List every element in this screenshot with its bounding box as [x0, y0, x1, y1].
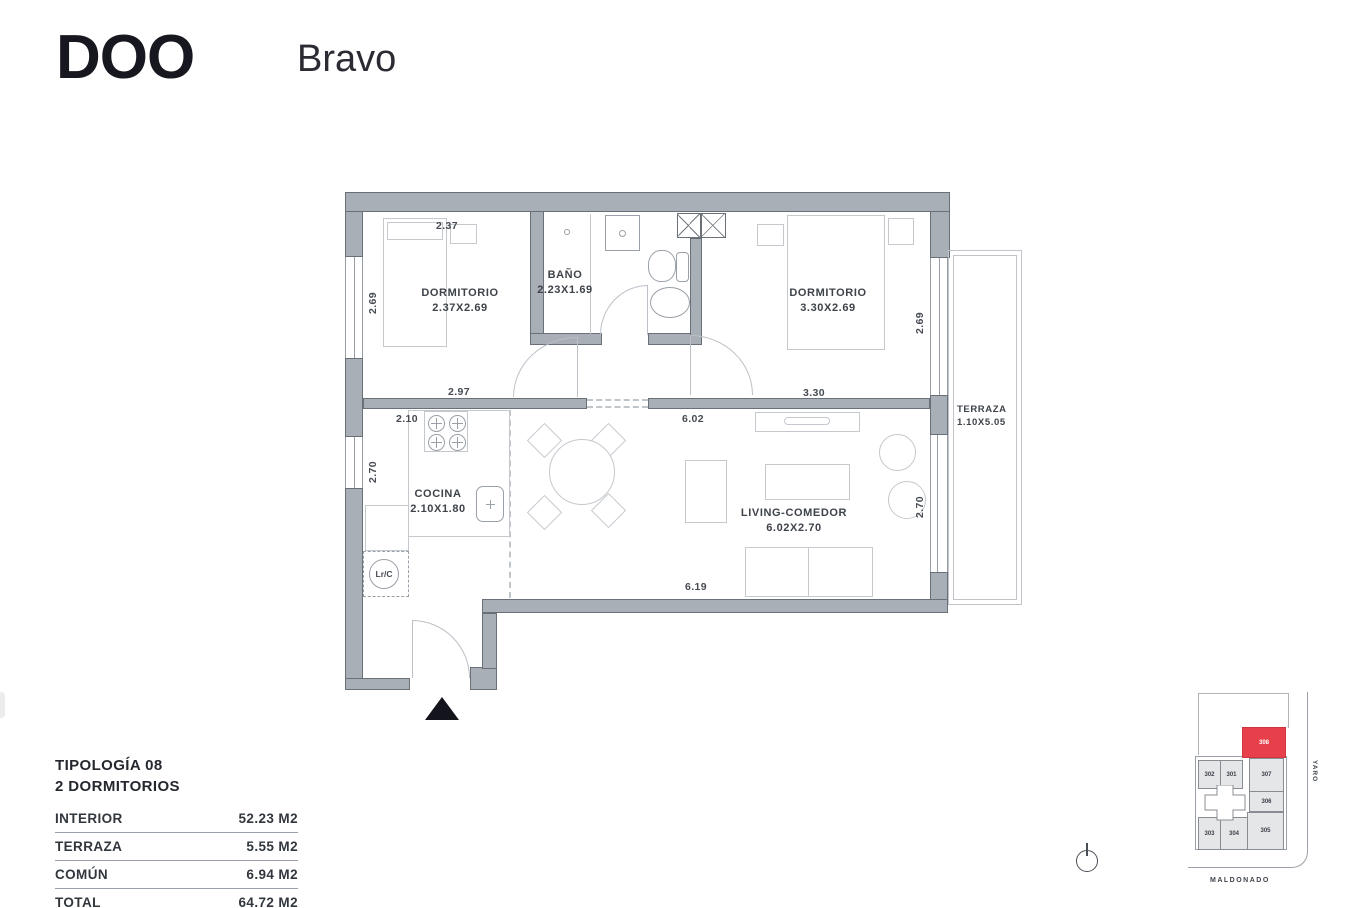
label-terraza: TERRAZA1.10X5.05 [957, 404, 1019, 430]
door-leaf-dorm2 [690, 335, 691, 395]
nightstand-dorm2-right [888, 218, 914, 245]
door-arc-bath [600, 285, 648, 335]
sitemap-unit-306: 306 [1249, 791, 1284, 812]
wall-left-c [345, 488, 363, 690]
project-name: Bravo [297, 40, 396, 78]
side-table [685, 460, 727, 523]
dim-dorm1-top: 2.37 [427, 219, 467, 233]
duct-shaft-2 [701, 213, 726, 238]
dim-cocina-top: 2.10 [387, 412, 427, 426]
street-label-yaro: YARO [1311, 760, 1318, 782]
label-bano: BAÑO2.23X1.69 [533, 268, 597, 298]
north-arrow-needle [1086, 843, 1088, 856]
wall-right-mid [930, 395, 948, 435]
window-cocina [345, 437, 363, 488]
street-label-maldonado: MALDONADO [1210, 877, 1270, 884]
sitemap-unit-303: 303 [1198, 817, 1221, 850]
summary-row-terraza: TERRAZA5.55 M2 [55, 833, 298, 861]
wall-living-bottom [482, 599, 948, 613]
label-cocina: COCINA2.10X1.80 [398, 487, 478, 517]
door-leaf-bath [647, 285, 648, 335]
summary-table: TIPOLOGÍA 082 DORMITORIOS INTERIOR52.23 … [55, 755, 298, 908]
summary-row-comun: COMÚN6.94 M2 [55, 861, 298, 889]
dim-cocina-left: 2.70 [366, 452, 380, 492]
sliding-door-terraza [930, 435, 948, 572]
kitchen-sink [476, 486, 504, 522]
wall-entry-bottom-left [345, 678, 410, 690]
wall-bath-right [690, 238, 702, 345]
dining-table [549, 439, 615, 505]
entry-marker-icon [425, 697, 459, 720]
opening-dashed [587, 399, 648, 408]
wall-right-lower [930, 572, 948, 600]
door-arc-entry [412, 620, 470, 678]
label-living: LIVING-COMEDOR6.02X2.70 [724, 506, 864, 536]
shower-drain [564, 229, 570, 235]
bidet [650, 287, 690, 318]
dim-living-right: 2.70 [913, 487, 927, 527]
wall-entry-bottom-right [470, 667, 497, 690]
toilet-tank [676, 252, 689, 282]
wall-right-top [930, 211, 950, 258]
window-dorm2 [930, 258, 948, 395]
door-leaf-dorm1 [577, 337, 578, 397]
wall-mid-left [363, 398, 587, 409]
edge-artifact [0, 692, 5, 718]
brand-logo: DOO [56, 27, 194, 89]
dim-living-top: 6.02 [673, 412, 713, 426]
dim-dorm1-left: 2.69 [366, 283, 380, 323]
wall-top [345, 192, 950, 212]
summary-row-total: TOTAL64.72 M2 [55, 889, 298, 908]
stove [424, 411, 468, 452]
dim-living-bottom: 6.19 [676, 580, 716, 594]
wall-left-a [345, 211, 363, 257]
laundry-machine: Lr/C [369, 559, 399, 589]
nightstand-dorm2-left [757, 224, 784, 246]
door-arc-dorm1 [513, 337, 577, 397]
wall-left-b [345, 358, 363, 437]
bed-dorm2 [787, 215, 885, 350]
label-dorm2: DORMITORIO3.30X2.69 [758, 286, 898, 316]
door-leaf-entry [412, 620, 413, 678]
sofa [745, 547, 873, 597]
round-chair-1 [879, 434, 916, 471]
sitemap-unit-308: 308 [1242, 727, 1286, 758]
label-dorm1: DORMITORIO2.37X2.69 [390, 286, 530, 316]
sofa-divider [808, 547, 809, 597]
window-dorm1 [345, 257, 363, 358]
dim-dorm1-bottom: 2.97 [439, 385, 479, 399]
door-arc-dorm2 [690, 335, 753, 395]
dim-dorm2-bottom: 3.30 [794, 386, 834, 400]
dim-dorm2-right: 2.69 [913, 303, 927, 343]
sitemap-unit-305: 305 [1247, 812, 1284, 850]
coffee-table [765, 464, 850, 500]
duct-shaft-1 [677, 213, 701, 238]
sitemap-lot-edge [1288, 693, 1289, 728]
typology-title: TIPOLOGÍA 082 DORMITORIOS [55, 755, 298, 797]
tv [784, 417, 830, 425]
summary-row-interior: INTERIOR52.23 M2 [55, 805, 298, 833]
wall-mid-right [648, 398, 930, 409]
bath-sink-basin [619, 230, 626, 237]
sitemap-unit-307: 307 [1249, 758, 1284, 792]
sitemap-unit-304: 304 [1220, 817, 1248, 850]
toilet [648, 250, 676, 282]
wall-entry-right [482, 613, 497, 669]
floorplan-page: DOO Bravo [0, 0, 1365, 908]
elevator-core [1204, 785, 1246, 821]
chair-sw [527, 495, 562, 530]
